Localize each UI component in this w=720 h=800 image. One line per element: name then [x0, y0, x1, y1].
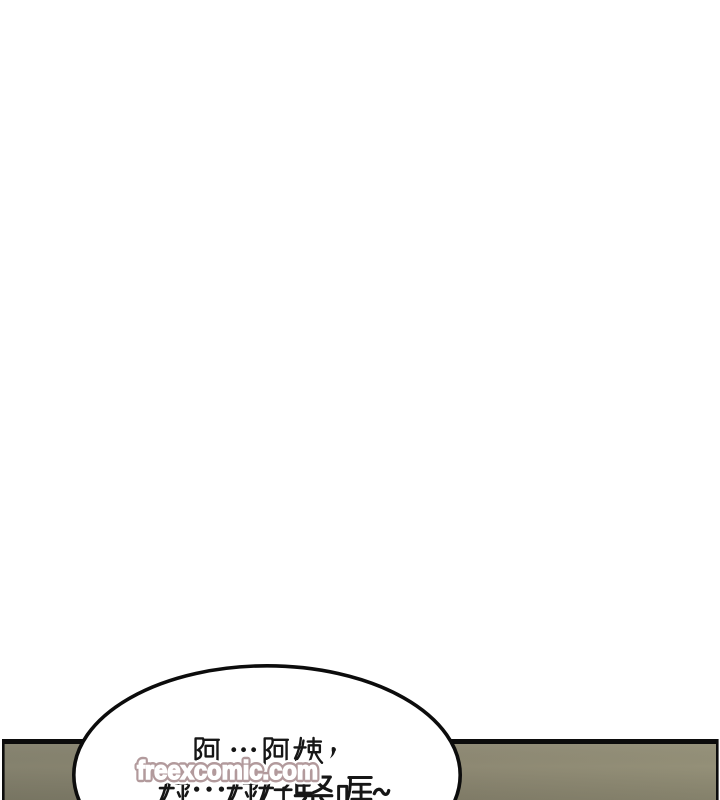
- svg-text:freexcomic.com: freexcomic.com: [137, 755, 318, 785]
